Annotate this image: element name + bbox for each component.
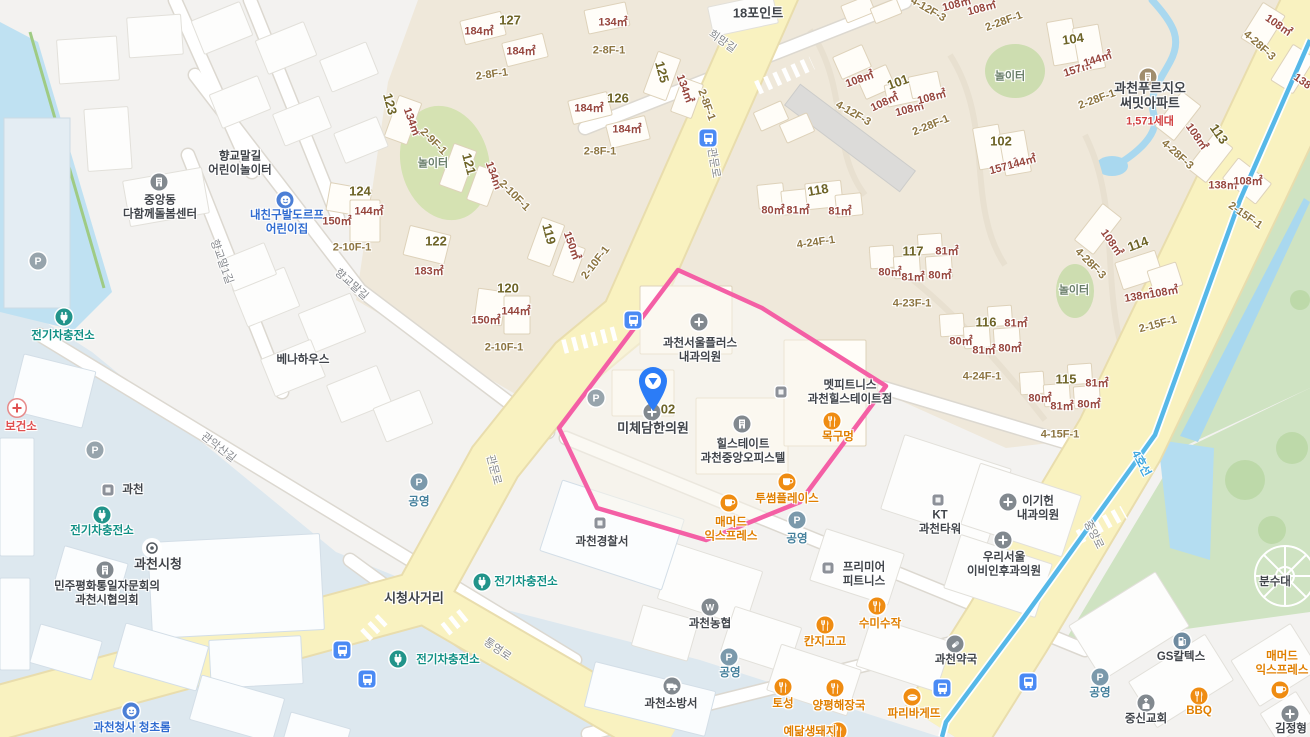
map-canvas[interactable]: PPPPPPPW18포인트향교말길어린이놀이터중앙동다함께돌봄센터내친구발도르프… [0, 0, 1310, 737]
lot-124: 124 [349, 183, 371, 198]
place-hyanggyo-playground[interactable]: 향교말길어린이놀이터 [208, 150, 271, 177]
area-text: 81㎡ [1004, 318, 1027, 331]
lot-125-text: 125 [652, 60, 672, 85]
poi-toseong[interactable]: 토성 [772, 698, 793, 712]
area: 108㎡ [916, 88, 948, 108]
parking-gongyeong-3-text: 공영 [719, 667, 740, 681]
place-seoulplus-clinic-text: 내과의원 [663, 351, 737, 365]
poi-mammoth-express-2-text: 익스프레스 [1256, 664, 1309, 678]
road-huimang: 희망길 [706, 28, 738, 56]
place-peace-council-text: 과천시협의회 [54, 594, 160, 608]
road-tongyeong: 통영로 [481, 636, 513, 664]
area-text: 108㎡ [1262, 12, 1293, 39]
place-18point-text: 18포인트 [733, 5, 783, 20]
fcode-text: 4-28F-3 [1240, 28, 1277, 63]
place-peace-council[interactable]: 민주평화통일자문회의과천시협의회 [54, 580, 160, 607]
area-text: 80㎡ [1028, 393, 1051, 406]
area-text: 81㎡ [901, 272, 924, 285]
poi-gs-caltex-text: GS칼텍스 [1157, 651, 1205, 665]
place-hillstate-officetel-text: 힐스테이트 [701, 438, 786, 452]
area-text: 134㎡ [598, 17, 627, 30]
place-hillstate-officetel-text: 과천중앙오피스텔 [701, 452, 786, 466]
lot-102: 102 [990, 133, 1012, 148]
area-text: 138 [1291, 71, 1310, 92]
clinic-cross-icon[interactable] [691, 314, 708, 331]
place-ev-charger-4[interactable]: 전기차충전소 [494, 576, 557, 590]
area-text: 80㎡ [949, 336, 972, 349]
fcode-text: 2-8F-1 [593, 45, 625, 58]
place-nonghyup-text: 과천농협 [689, 618, 731, 632]
lot-116: 116 [976, 314, 997, 329]
road-gwanaksan-text: 관악산길 [198, 430, 238, 465]
lot-126: 126 [607, 90, 629, 105]
public-parking-icon[interactable]: P [1092, 669, 1109, 686]
area: 144㎡ [354, 206, 383, 219]
area: 144㎡ [1006, 153, 1038, 173]
bakery-icon[interactable] [904, 689, 921, 706]
area: 81㎡ [1085, 378, 1108, 391]
place-kt-tower-text: 과천타워 [919, 523, 961, 537]
restaurant-icon[interactable] [775, 679, 792, 696]
ev-charger-icon[interactable] [56, 309, 73, 326]
purgio-units-text: 1,571세대 [1126, 116, 1174, 129]
nonghyup-icon[interactable]: W [702, 599, 719, 616]
poi-mokgumeong-text: 목구멍 [822, 431, 854, 445]
parking-icon[interactable]: P [588, 390, 605, 407]
cafe-icon[interactable] [1272, 682, 1289, 699]
poi-yedam-pork-text: 예닮생돼지 [784, 726, 837, 737]
area-text: 108㎡ [1097, 227, 1124, 258]
place-gwacheon[interactable]: 과천 [122, 484, 143, 498]
area-text: 150㎡ [471, 315, 500, 328]
poi-yangpyeong-haejangguk[interactable]: 양평해장국 [813, 700, 866, 714]
place-kimjeonghyeong[interactable]: 김정형 [1275, 723, 1307, 737]
lot-104-text: 104 [1061, 30, 1085, 48]
area: 184㎡ [612, 124, 641, 137]
area-text: 81㎡ [786, 205, 809, 218]
parking-gongyeong-1-text: 공영 [408, 496, 429, 510]
ev-charger-icon[interactable] [390, 651, 407, 668]
place-benahouse[interactable]: 베나하우스 [277, 354, 330, 368]
poi-bbq-text: BBQ [1186, 705, 1212, 719]
road-tongyeong-text: 통영로 [481, 636, 513, 664]
bus-stop-icon[interactable] [934, 680, 951, 697]
restaurant-icon[interactable] [869, 598, 886, 615]
fcode: 4-24F-1 [796, 234, 836, 252]
junction-cityhall-text: 시청사거리 [384, 590, 444, 605]
lot-127-text: 127 [499, 12, 521, 27]
road-gwanmun-2: 관문로 [483, 454, 503, 487]
area: 80㎡ [1028, 393, 1051, 406]
place-peace-council-text: 민주평화통일자문회의 [54, 580, 160, 594]
lot-125: 125 [652, 60, 672, 85]
area: 80㎡ [878, 267, 901, 280]
poi-mokgumeong[interactable]: 목구멍 [822, 431, 854, 445]
place-police-station[interactable]: 과천경찰서 [576, 536, 629, 550]
area-text: 184㎡ [506, 46, 535, 59]
poi-bbq[interactable]: BBQ [1186, 705, 1212, 719]
place-ev-charger-1[interactable]: 전기차충전소 [31, 330, 94, 344]
place-premier-fitness[interactable]: 프리미어피트니스 [843, 561, 885, 588]
lot-120: 120 [497, 280, 519, 295]
area-text: 81㎡ [1085, 378, 1108, 391]
lot-114-text: 114 [1126, 233, 1151, 255]
place-benahouse-text: 베나하우스 [277, 354, 330, 368]
public-parking-icon[interactable]: P [411, 474, 428, 491]
area-text: 80㎡ [878, 267, 901, 280]
fcode-text: 2-15F-1 [1225, 200, 1264, 233]
area-text: 80㎡ [928, 270, 951, 283]
area-text: 144㎡ [1006, 153, 1038, 173]
place-metfitness-text: 멧피트니스 [808, 379, 893, 393]
area-text: 108㎡ [916, 88, 948, 108]
poi-mammoth-express-1-text: 매머드 [705, 516, 758, 530]
place-daycare-waldorf[interactable]: 내친구발도르프어린이집 [250, 209, 324, 236]
parking-gongyeong-1[interactable]: 공영 [408, 496, 429, 510]
health-center-cross-icon[interactable] [9, 400, 26, 417]
poi-kanjigogo[interactable]: 칸지고고 [804, 636, 846, 650]
fcode: 2-15F-1 [1225, 200, 1264, 233]
lot-113: 113 [1207, 121, 1232, 147]
place-leekiheon-clinic[interactable]: 이기헌내과의원 [1017, 495, 1059, 522]
area: 80㎡ [998, 343, 1021, 356]
parking-gongyeong-4-text: 공영 [1089, 687, 1110, 701]
ev-charger-icon[interactable] [94, 507, 111, 524]
fcode-text: 2-10F-1 [485, 342, 524, 355]
place-care-center-text: 중앙동 [123, 194, 197, 208]
parking-gongyeong-4[interactable]: 공영 [1089, 687, 1110, 701]
lot-113-text: 113 [1207, 121, 1232, 147]
place-kimjeonghyeong-text: 김정형 [1275, 723, 1307, 737]
place-fire-station[interactable]: 과천소방서 [645, 698, 698, 712]
area-text: 183㎡ [414, 266, 443, 279]
fcode: 2-10F-1 [496, 178, 532, 214]
place-health-center[interactable]: 보건소 [5, 421, 37, 435]
area: 150㎡ [322, 216, 351, 229]
pharmacy-icon[interactable] [947, 636, 964, 653]
area: 108㎡ [1097, 227, 1124, 258]
place-seoulplus-clinic-text: 과천서울플러스 [663, 337, 737, 351]
park-playground-1: 놀이터 [418, 158, 448, 171]
place-leekiheon-clinic-text: 이기헌 [1017, 495, 1059, 509]
park-playground-2-text: 놀이터 [995, 71, 1025, 84]
area: 134㎡ [598, 17, 627, 30]
place-nonghyup[interactable]: 과천농협 [689, 618, 731, 632]
place-cheongchorom[interactable]: 과천청사 청초롬 [93, 722, 170, 736]
parking-icon[interactable]: P [87, 442, 104, 459]
lot-119-text: 119 [539, 222, 559, 246]
parking-gongyeong-2-text: 공영 [786, 533, 807, 547]
place-city-hall[interactable]: 과천시청 [134, 556, 182, 571]
lot-117-text: 117 [903, 243, 924, 258]
cafe-icon[interactable] [779, 474, 796, 491]
area: 150㎡ [560, 230, 582, 262]
parking-gongyeong-3[interactable]: 공영 [719, 667, 740, 681]
area: 108㎡ [1182, 121, 1209, 152]
fcode-text: 4-23F-1 [893, 298, 932, 311]
area: 81㎡ [786, 205, 809, 218]
place-marker-icon[interactable] [823, 563, 834, 574]
park-playground-2: 놀이터 [995, 71, 1025, 84]
lot-101-text: 101 [885, 71, 911, 93]
area-text: 184㎡ [612, 124, 641, 137]
place-michedam-clinic[interactable]: 미체담한의원 [617, 420, 689, 435]
poi-sumisujak[interactable]: 수미수작 [859, 618, 901, 632]
clinic-cross-icon[interactable] [1000, 494, 1017, 511]
area: 144㎡ [501, 306, 530, 319]
road-hyanggyomal: 향교말길 [332, 267, 371, 304]
lot-123: 123 [380, 92, 400, 117]
area-text: 184㎡ [464, 26, 493, 39]
place-purgio-summit[interactable]: 과천푸르지오써밋아파트 [1114, 81, 1186, 112]
place-ev-charger-1-text: 전기차충전소 [31, 330, 94, 344]
poi-mammoth-express-1-text: 익스프레스 [705, 530, 758, 544]
road-gwanmun-1-text: 관문로 [704, 147, 722, 179]
fcode: 2-10F-1 [485, 342, 524, 355]
poi-mammoth-express-2[interactable]: 매머드익스프레스 [1256, 650, 1309, 677]
fire-station-icon[interactable] [664, 678, 681, 695]
fcode-text: 2-10F-1 [333, 242, 372, 255]
place-ev-charger-4-text: 전기차충전소 [494, 576, 557, 590]
clinic-cross-icon[interactable] [995, 532, 1012, 549]
fcode-text: 4-24F-1 [963, 371, 1002, 384]
area: 184㎡ [464, 26, 493, 39]
fcode: 2-15F-1 [1138, 314, 1179, 336]
area-text: 80㎡ [761, 205, 784, 218]
area: 81㎡ [1050, 401, 1073, 414]
gas-station-icon[interactable] [1174, 633, 1191, 650]
place-ev-charger-3[interactable]: 전기차충전소 [416, 654, 479, 668]
fcode-text: 4-12F-3 [833, 99, 873, 129]
poi-mammoth-express-2-text: 매머드 [1256, 650, 1309, 664]
area: 183㎡ [414, 266, 443, 279]
area-text: 144㎡ [1082, 49, 1114, 70]
area-text: 81㎡ [935, 246, 958, 259]
lot-116-text: 116 [976, 314, 997, 329]
fcode: 4-24F-1 [963, 371, 1002, 384]
place-metfitness-text: 과천힐스테이트점 [808, 393, 893, 407]
area: 80㎡ [761, 205, 784, 218]
fcode: 2-8F-1 [593, 45, 625, 58]
fcode-text: 4-24F-1 [796, 234, 836, 252]
poi-gs-caltex[interactable]: GS칼텍스 [1157, 651, 1205, 665]
area-text: 108㎡ [1182, 121, 1209, 152]
area: 80㎡ [928, 270, 951, 283]
junction-cityhall: 시청사거리 [384, 590, 444, 605]
poi-paris-baguette-text: 파리바게뜨 [888, 708, 941, 722]
area-text: 80㎡ [1077, 399, 1100, 412]
lot-104: 104 [1061, 30, 1085, 48]
fcode: 2-8F-1 [694, 88, 717, 123]
area: 184㎡ [574, 103, 603, 116]
bus-stop-icon[interactable] [334, 642, 351, 659]
place-cheongchorom-text: 과천청사 청초롬 [93, 722, 170, 736]
fcode-text: 2-10F-1 [579, 244, 613, 282]
place-premier-fitness-text: 피트니스 [843, 575, 885, 589]
public-parking-icon[interactable]: P [789, 512, 806, 529]
lot-127: 127 [499, 12, 521, 27]
fcode: 4-28F-3 [1072, 246, 1108, 282]
place-daycare-waldorf-text: 내친구발도르프 [250, 209, 324, 223]
place-marker-icon[interactable] [776, 387, 787, 398]
parking-icon[interactable]: P [30, 253, 47, 270]
place-hyanggyo-playground-text: 어린이놀이터 [208, 164, 271, 178]
place-kt-tower[interactable]: KT과천타워 [919, 509, 961, 536]
fcode-text: 2-8F-1 [584, 146, 616, 159]
place-ev-charger-3-text: 전기차충전소 [416, 654, 479, 668]
fcode: 2-28F-1 [1077, 87, 1118, 112]
park-playground-3: 놀이터 [1059, 285, 1089, 298]
place-purgio-summit-text: 써밋아파트 [1114, 96, 1186, 111]
area-text: 144㎡ [501, 306, 530, 319]
fcode: 2-9F-1 [417, 126, 449, 158]
area: 81㎡ [828, 206, 851, 219]
fcode: 2-10F-1 [579, 244, 613, 282]
lot-102-text: 102 [990, 133, 1012, 148]
fcode-text: 2-10F-1 [496, 178, 532, 214]
restaurant-icon[interactable] [817, 617, 834, 634]
area: 81㎡ [935, 246, 958, 259]
lot-126-text: 126 [607, 90, 629, 105]
place-pharmacy[interactable]: 과천약국 [935, 654, 977, 668]
place-marker-icon[interactable] [103, 485, 114, 496]
city-hall-target-icon[interactable] [144, 540, 161, 557]
bus-stop-icon[interactable] [359, 671, 376, 688]
fcode: 4-28F-3 [1158, 137, 1195, 172]
building-icon[interactable] [151, 174, 168, 191]
poi-paris-baguette[interactable]: 파리바게뜨 [888, 708, 941, 722]
lot-118: 118 [806, 181, 829, 200]
lot-114: 114 [1126, 233, 1151, 255]
area: 108㎡ [844, 69, 876, 91]
area: 80㎡ [1077, 399, 1100, 412]
restaurant-icon[interactable] [824, 413, 841, 430]
area-text: 81㎡ [1050, 401, 1073, 414]
place-wooriseoul-clinic[interactable]: 우리서울이비인후과의원 [967, 551, 1041, 578]
place-18point[interactable]: 18포인트 [733, 5, 783, 20]
area-text: 81㎡ [828, 206, 851, 219]
place-fountain[interactable]: 분수대 [1259, 576, 1291, 590]
fcode-text: 2-28F-1 [911, 113, 952, 139]
fcode: 2-10F-1 [333, 242, 372, 255]
lot-117: 117 [903, 243, 924, 258]
place-city-hall-text: 과천시청 [134, 556, 182, 571]
area: 81㎡ [901, 272, 924, 285]
area-text: 134㎡ [673, 73, 695, 105]
lot-118-text: 118 [806, 181, 829, 200]
place-premier-fitness-text: 프리미어 [843, 561, 885, 575]
fcode: 4-15F-1 [1041, 429, 1080, 442]
fcode-text: 4-28F-3 [1158, 137, 1195, 172]
fcode-text: 2-28F-1 [1077, 87, 1118, 112]
public-parking-icon[interactable]: P [721, 649, 738, 666]
bus-stop-icon[interactable] [1020, 674, 1037, 691]
area-text: 108㎡ [1148, 284, 1179, 302]
road-hyanggyomal-text: 향교말길 [332, 267, 371, 304]
place-michedam-clinic-text: 미체담한의원 [617, 420, 689, 435]
restaurant-icon[interactable] [1191, 688, 1208, 705]
bus-stop-icon[interactable] [700, 130, 717, 147]
poi-mammoth-express-1[interactable]: 매머드익스프레스 [705, 516, 758, 543]
fcode: 2-8F-1 [584, 146, 616, 159]
lot-115: 115 [1056, 371, 1077, 386]
daycare-icon[interactable] [123, 703, 140, 720]
building-icon[interactable] [734, 416, 751, 433]
bus-stop-icon[interactable] [625, 312, 642, 329]
fcode-text: 4-15F-1 [1041, 429, 1080, 442]
road-gwanaksan: 관악산길 [198, 430, 238, 465]
place-fountain-text: 분수대 [1259, 576, 1291, 590]
daycare-icon[interactable] [277, 192, 294, 209]
area: 184㎡ [506, 46, 535, 59]
fcode: 2-28F-1 [911, 113, 952, 139]
area-text: 144㎡ [354, 206, 383, 219]
building-icon[interactable] [97, 562, 114, 579]
place-wooriseoul-clinic-text: 우리서울 [967, 551, 1041, 565]
road-jungang-text: 중앙로 [1080, 519, 1105, 552]
place-care-center[interactable]: 중앙동다함께돌봄센터 [123, 194, 197, 221]
poi-twosome-place[interactable]: 투썸플레이스 [755, 493, 818, 507]
place-jungsin-church[interactable]: 중신교회 [1125, 713, 1167, 727]
place-seoulplus-clinic[interactable]: 과천서울플러스내과의원 [663, 337, 737, 364]
area: 150㎡ [471, 315, 500, 328]
poi-twosome-place-text: 투썸플레이스 [755, 493, 818, 507]
area: 81㎡ [972, 345, 995, 358]
park-playground-1-text: 놀이터 [418, 158, 448, 171]
ev-charger-icon[interactable] [474, 574, 491, 591]
lot-121: 121 [459, 152, 479, 177]
fcode: 4-28F-3 [1240, 28, 1277, 63]
area: 144㎡ [1082, 49, 1114, 70]
selected-place-pin-icon[interactable] [636, 366, 670, 417]
place-care-center-text: 다함께돌봄센터 [123, 208, 197, 222]
lot-122-text: 122 [425, 233, 447, 248]
place-marker-icon[interactable] [595, 518, 606, 529]
area-text: 184㎡ [574, 103, 603, 116]
place-hyanggyo-playground-text: 향교말길 [208, 150, 271, 164]
place-gwacheon-text: 과천 [122, 484, 143, 498]
fcode-text: 2-9F-1 [417, 126, 449, 158]
poi-yedam-pork[interactable]: 예닮생돼지 [784, 726, 837, 737]
area-text: 150㎡ [560, 230, 582, 262]
lot-119: 119 [539, 222, 559, 246]
fcode: 4-12F-3 [833, 99, 873, 129]
fcode-text: 2-8F-1 [475, 66, 509, 83]
lot-121-text: 121 [459, 152, 479, 177]
place-metfitness[interactable]: 멧피트니스과천힐스테이트점 [808, 379, 893, 406]
subway-line4-text: 4호선 [1128, 449, 1153, 480]
area-text: 80㎡ [998, 343, 1021, 356]
place-purgio-summit-text: 과천푸르지오 [1114, 81, 1186, 96]
place-fire-station-text: 과천소방서 [645, 698, 698, 712]
fcode-text: 2-8F-1 [694, 88, 717, 123]
fcode: 2-8F-1 [475, 66, 509, 83]
poi-sumisujak-text: 수미수작 [859, 618, 901, 632]
fcode-text: 2-15F-1 [1138, 314, 1179, 336]
place-marker-icon[interactable] [933, 495, 944, 506]
place-leekiheon-clinic-text: 내과의원 [1017, 509, 1059, 523]
place-daycare-waldorf-text: 어린이집 [250, 223, 324, 237]
poi-kanjigogo-text: 칸지고고 [804, 636, 846, 650]
cafe-icon[interactable] [721, 495, 738, 512]
parking-gongyeong-2[interactable]: 공영 [786, 533, 807, 547]
place-ev-charger-2[interactable]: 전기차충전소 [70, 525, 133, 539]
restaurant-icon[interactable] [827, 680, 844, 697]
church-icon[interactable] [1138, 695, 1155, 712]
clinic-cross-icon[interactable] [1282, 706, 1299, 723]
place-hillstate-officetel[interactable]: 힐스테이트과천중앙오피스텔 [701, 438, 786, 465]
place-police-station-text: 과천경찰서 [576, 536, 629, 550]
